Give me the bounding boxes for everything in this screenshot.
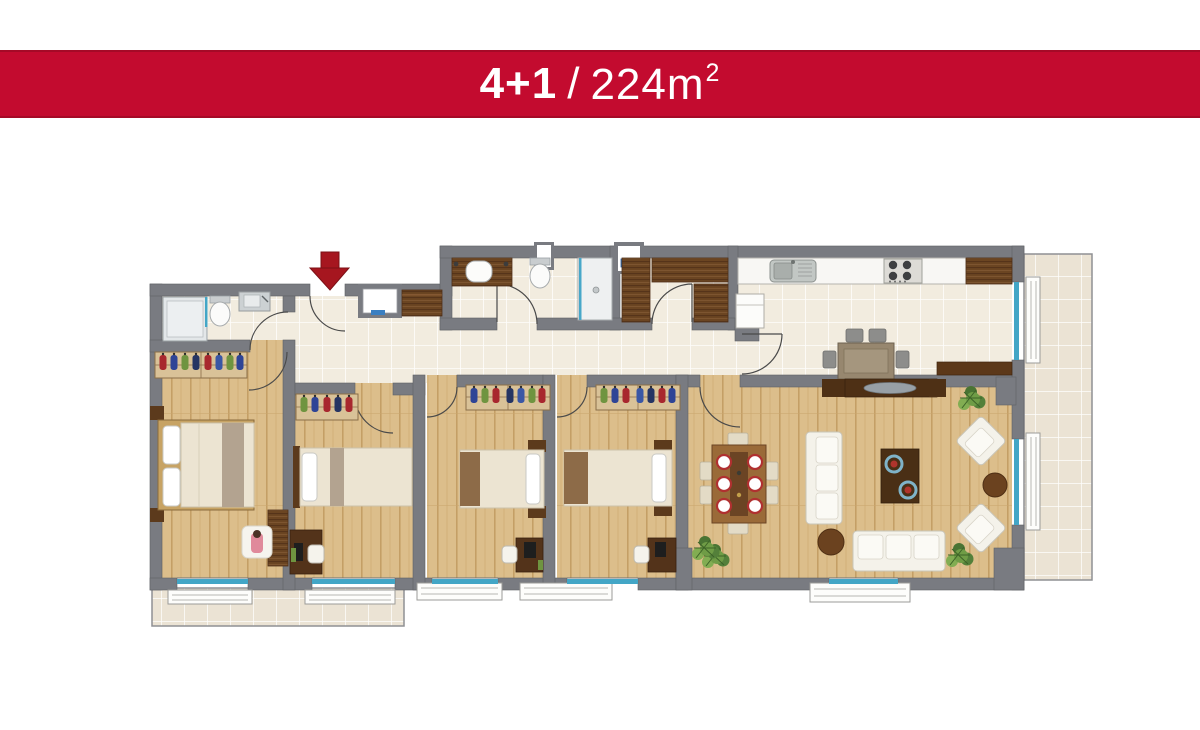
- dining-set: [700, 433, 778, 534]
- floor-plan: [0, 0, 1200, 730]
- coffee-table: [881, 449, 919, 503]
- toilet-bowl: [530, 264, 550, 288]
- tv-unit: [822, 379, 946, 397]
- wardrobe: [596, 385, 680, 410]
- fridge: [736, 294, 764, 328]
- entrance-hall: [402, 290, 442, 316]
- double-bed: [158, 420, 254, 510]
- single-bed: [564, 450, 672, 506]
- side-table: [818, 529, 844, 555]
- sink: [466, 261, 492, 282]
- page: 4+1 / 224m2: [0, 0, 1200, 730]
- single-bed: [460, 450, 544, 508]
- sofa-horizontal: [853, 531, 945, 571]
- wardrobe: [296, 394, 358, 420]
- desk-chair: [308, 545, 324, 563]
- single-bed: [293, 446, 412, 508]
- shower-glass: [579, 258, 582, 320]
- wardrobe: [155, 352, 247, 378]
- kitchen-cabinet: [966, 258, 1012, 284]
- desk: [290, 530, 324, 574]
- desk-chair: [634, 546, 649, 563]
- side-table: [983, 473, 1007, 497]
- shower-glass: [205, 297, 208, 327]
- nightstand: [150, 406, 164, 420]
- wardrobe: [466, 385, 550, 410]
- sofa-vertical: [806, 432, 842, 524]
- hall-bench: [402, 290, 442, 316]
- toilet-bowl: [210, 302, 230, 326]
- desk-chair: [502, 546, 517, 563]
- sideboard: [937, 362, 1012, 375]
- play-mat: [242, 526, 272, 558]
- tv: [864, 383, 916, 394]
